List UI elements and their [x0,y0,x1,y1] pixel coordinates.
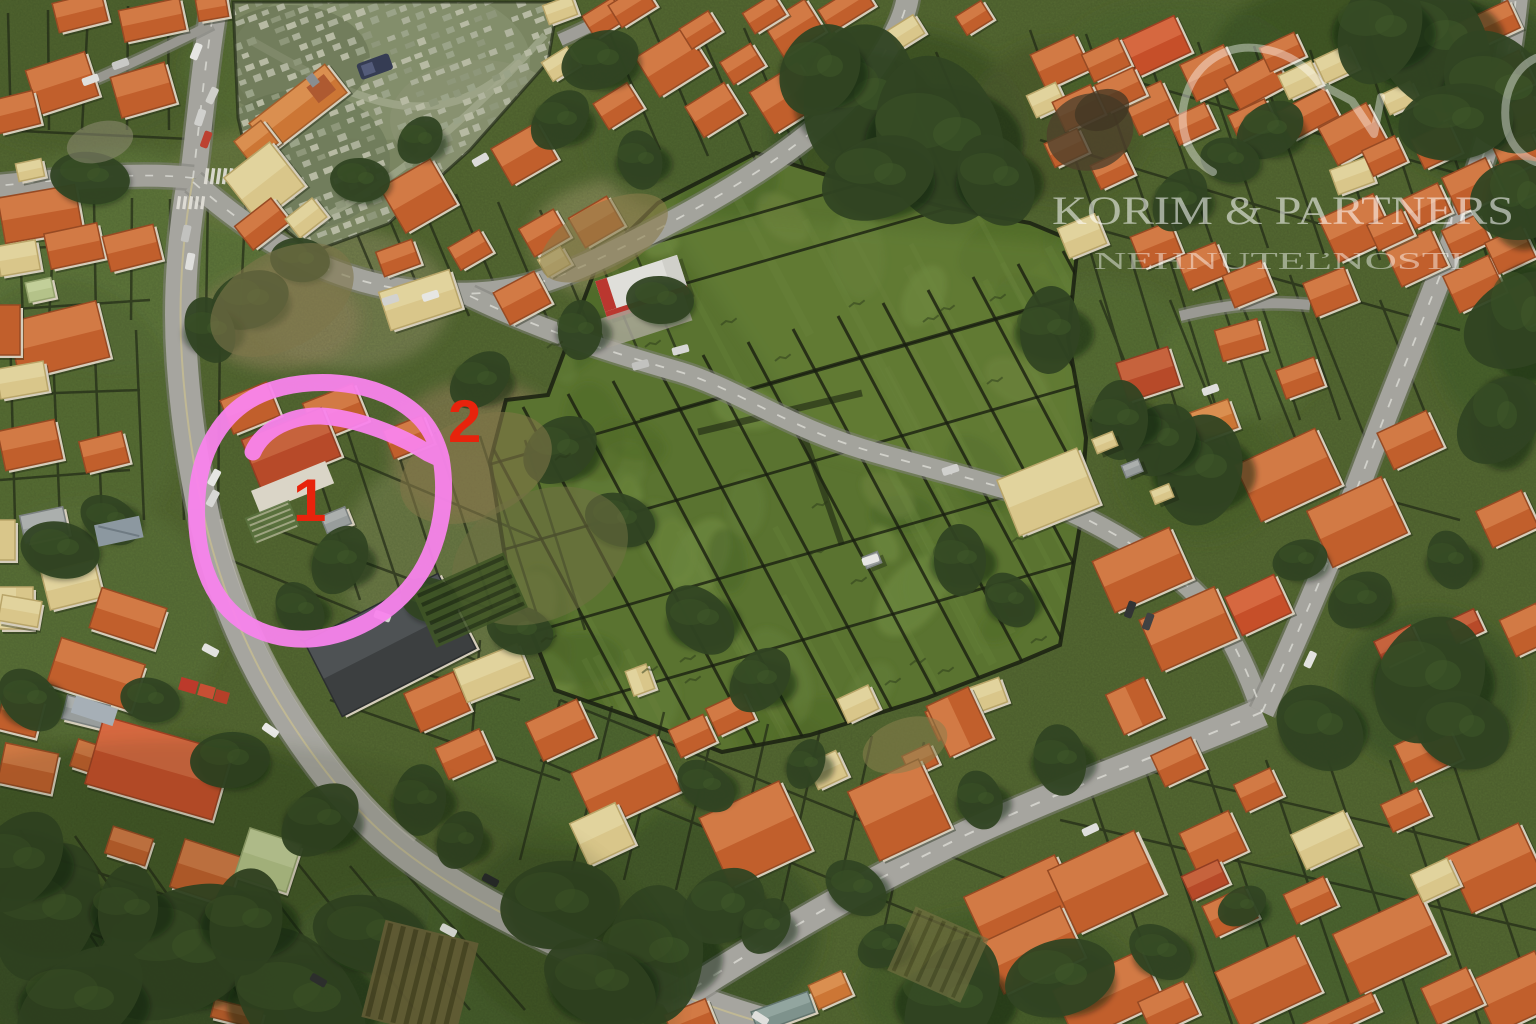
svg-text:KORIM & PARTNERS: KORIM & PARTNERS [1052,188,1514,233]
svg-text:2: 2 [448,388,481,455]
svg-text:1: 1 [293,467,326,534]
svg-text:NEHNUTEĽNOSTI: NEHNUTEĽNOSTI [1094,249,1464,275]
